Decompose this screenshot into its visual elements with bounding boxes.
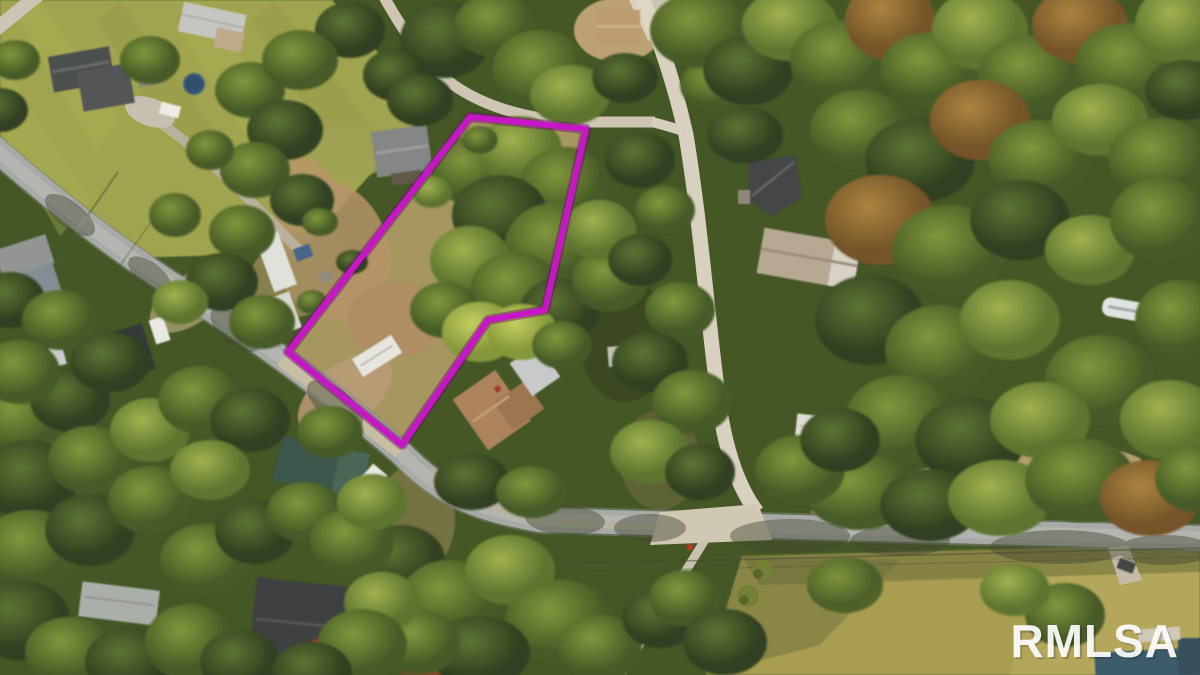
aerial-photo: RMLSA RMLSA — [0, 0, 1200, 675]
watermark: RMLSA RMLSA — [1010, 615, 1181, 669]
watermark-text: RMLSA — [1010, 615, 1179, 667]
light-wash — [0, 0, 1200, 675]
